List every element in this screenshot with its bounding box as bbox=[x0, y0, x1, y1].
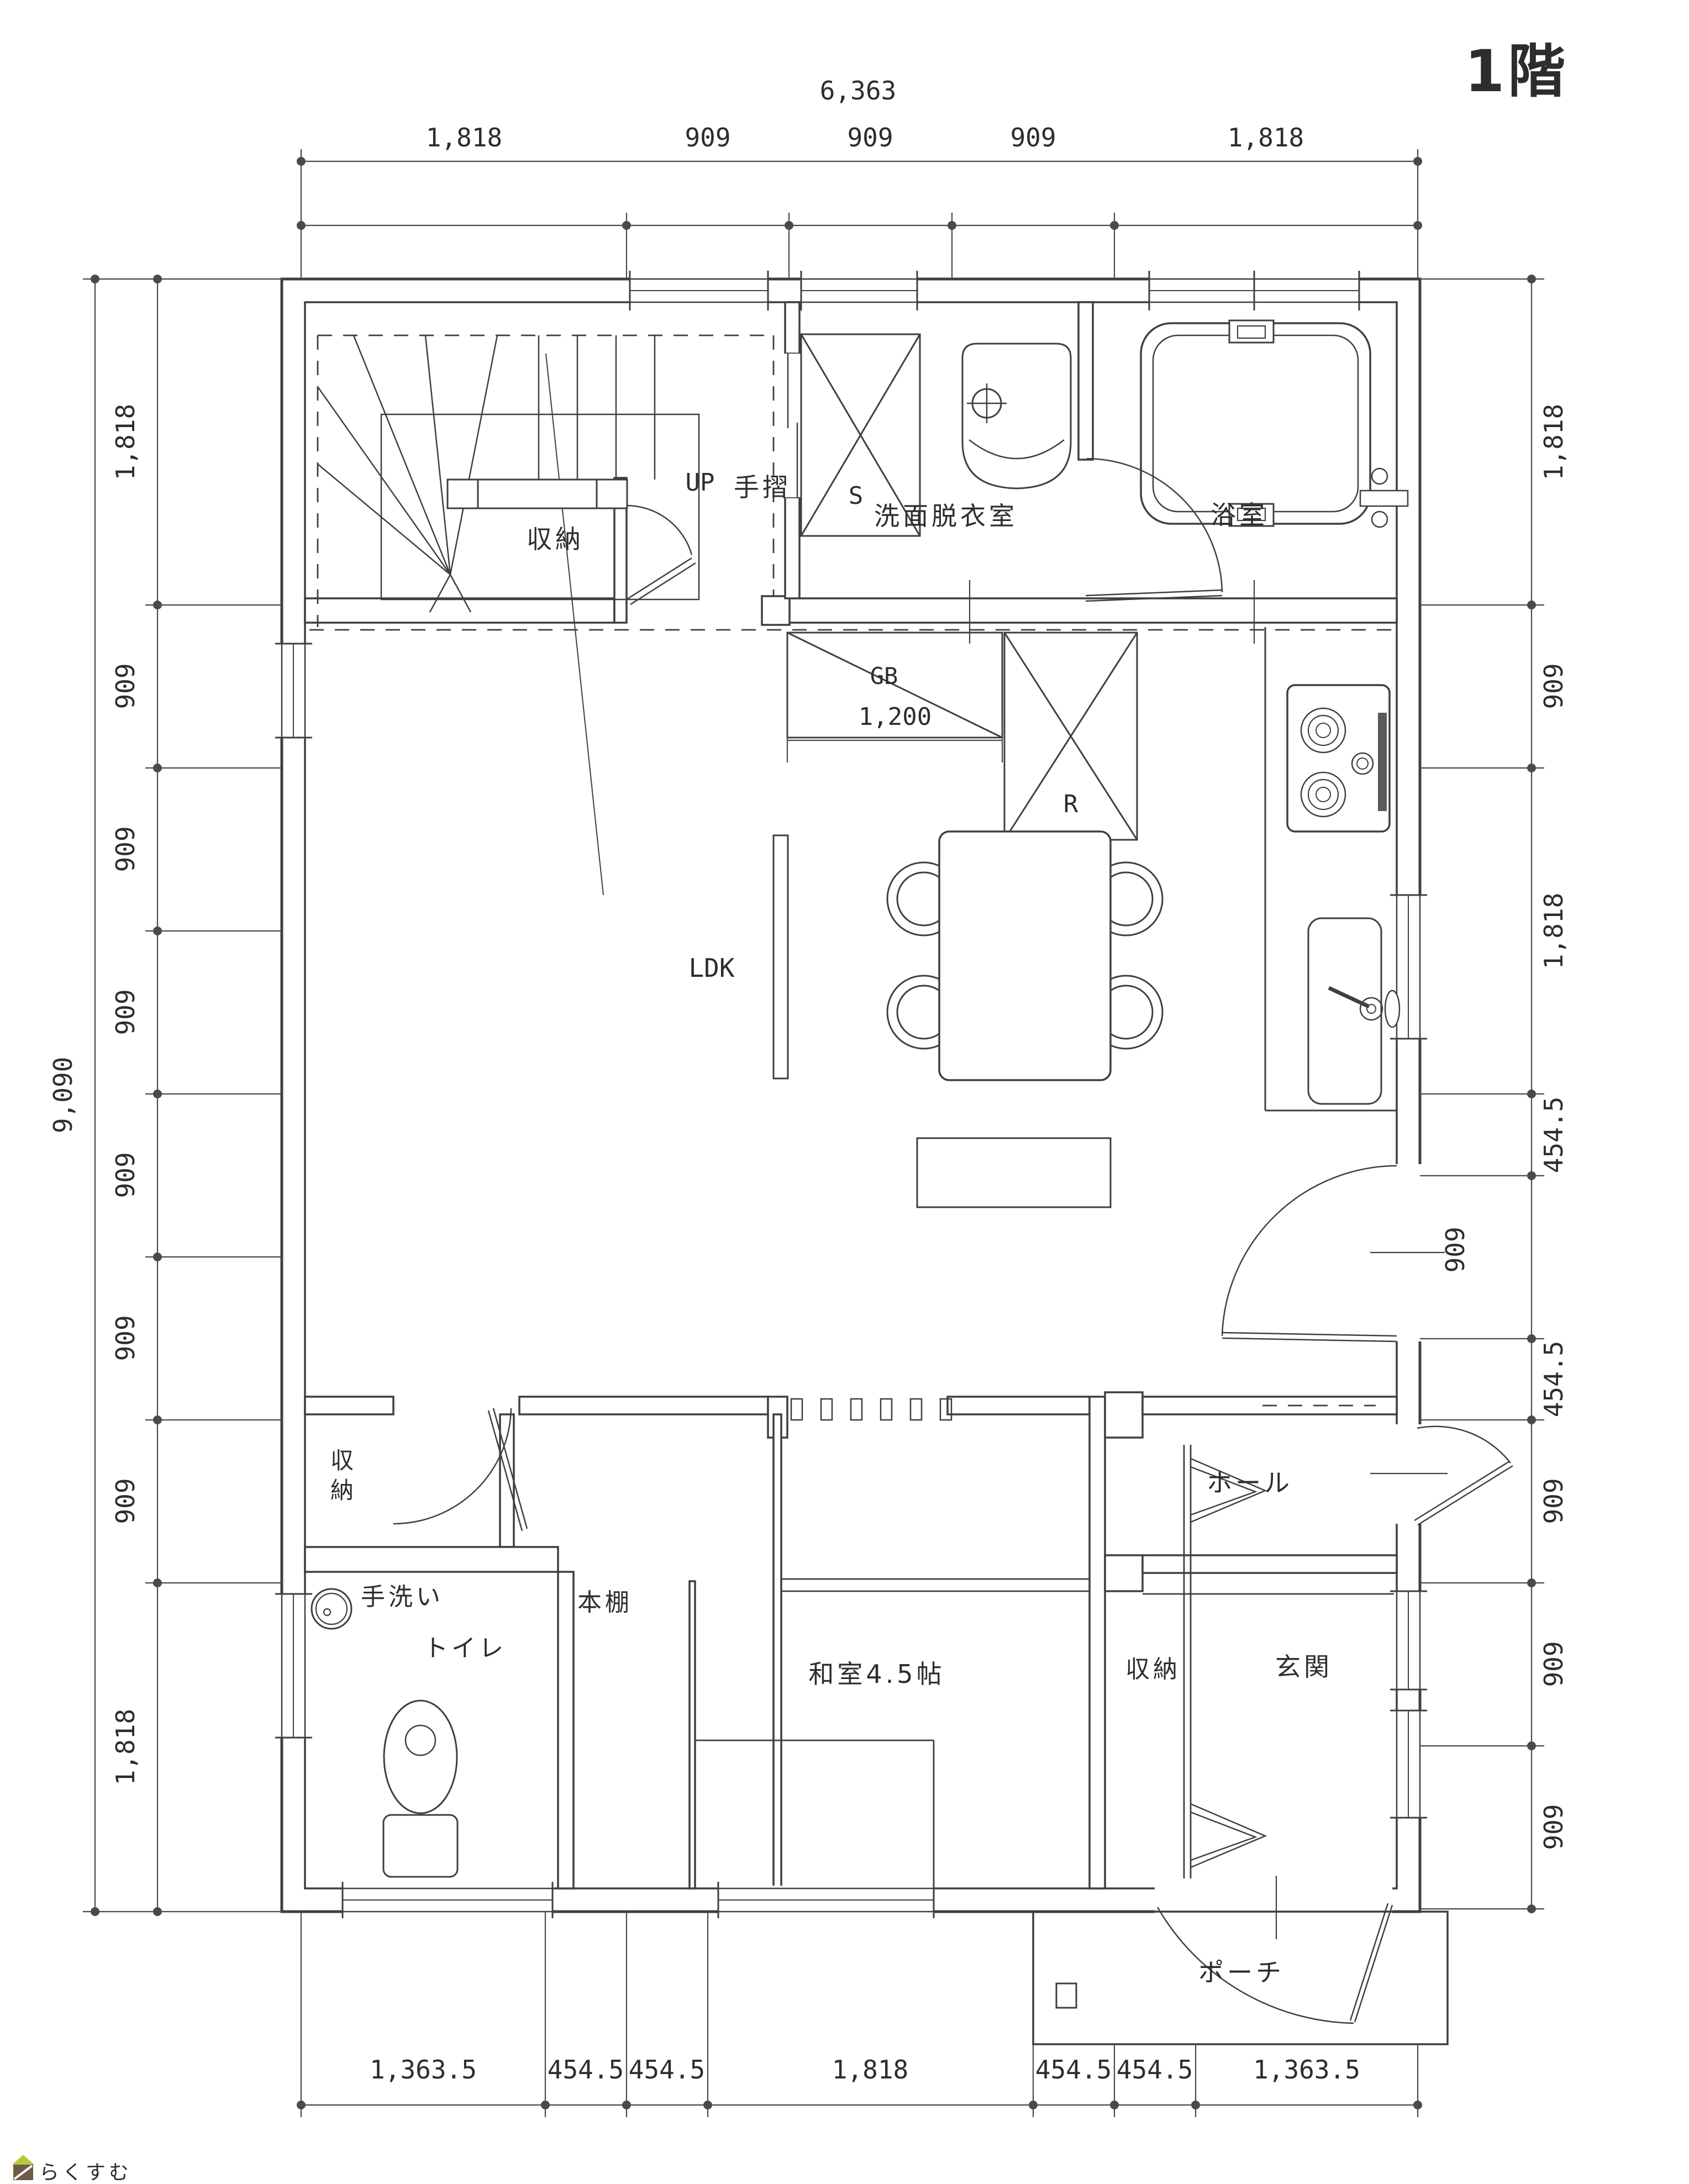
dim-bottom-5: 454.5 bbox=[1117, 2055, 1193, 2085]
room-label-entrance: 玄関 bbox=[1275, 1652, 1333, 1682]
dim-right-6: 909 bbox=[1539, 1478, 1569, 1524]
window-bottom-washitsu bbox=[718, 1882, 934, 1918]
dim-bottom-2: 454.5 bbox=[629, 2055, 705, 2085]
dim-right-2: 1,818 bbox=[1539, 893, 1569, 969]
gas-stove bbox=[1287, 685, 1390, 832]
logo-roof-icon bbox=[12, 2155, 34, 2165]
dim-top-3: 909 bbox=[1010, 123, 1056, 152]
floor-plan-page: 1階 6,363 1,818 909 909 909 1,818 9,090 1… bbox=[0, 0, 1689, 2184]
label-r: R bbox=[1064, 790, 1078, 818]
floor-plan-drawing: 1階 6,363 1,818 909 909 909 1,818 9,090 1… bbox=[0, 0, 1689, 2184]
window-left-ldk bbox=[275, 644, 312, 738]
room-label-japanese-room: 和室4.5帖 bbox=[808, 1659, 945, 1689]
room-label-hall: ホール bbox=[1207, 1468, 1293, 1498]
dim-left-1: 909 bbox=[111, 663, 140, 709]
dim-top-0: 1,818 bbox=[426, 123, 502, 152]
window-bottom-toilet bbox=[343, 1882, 553, 1918]
room-label-bookshelf: 本棚 bbox=[577, 1588, 633, 1617]
dim-bottom-1: 454.5 bbox=[548, 2055, 624, 2085]
window-left-toilet bbox=[275, 1594, 312, 1738]
dim-right-7: 909 bbox=[1539, 1641, 1569, 1687]
room-label-up: UP bbox=[686, 469, 715, 497]
room-label-entry-storage: 収納 bbox=[1125, 1655, 1181, 1683]
room-label-storage-char1: 収 bbox=[330, 1447, 357, 1474]
logo-text: らくすむ bbox=[39, 2161, 132, 2184]
label-s: S bbox=[849, 482, 864, 510]
washitsu-track-squares bbox=[791, 1399, 951, 1420]
dim-top-4: 1,818 bbox=[1228, 123, 1304, 152]
low-board bbox=[917, 1138, 1111, 1207]
dim-top-2: 909 bbox=[847, 123, 893, 152]
room-label-porch: ポーチ bbox=[1198, 1957, 1285, 1987]
window-right-entrance-2 bbox=[1390, 1711, 1427, 1818]
window-top-bath bbox=[1149, 271, 1359, 311]
dim-left-3: 909 bbox=[111, 989, 140, 1035]
dim-left-0: 1,818 bbox=[111, 404, 140, 480]
window-top-stair bbox=[630, 271, 768, 311]
room-label-handrail: 手摺 bbox=[734, 472, 791, 502]
page-title: 1階 bbox=[1465, 38, 1569, 105]
dim-left-overall: 9,090 bbox=[48, 1057, 78, 1133]
room-label-bath: 浴室 bbox=[1211, 500, 1268, 530]
dining-table bbox=[939, 832, 1111, 1080]
kitchen-sink-counter bbox=[1265, 627, 1399, 1111]
hand-wash-basin bbox=[312, 1589, 351, 1629]
window-top-washroom bbox=[801, 271, 917, 311]
dim-bottom-0: 1,363.5 bbox=[370, 2055, 477, 2085]
dim-bottom-3: 1,818 bbox=[832, 2055, 908, 2085]
dim-left-5: 909 bbox=[111, 1315, 140, 1361]
room-label-ldk: LDK bbox=[688, 953, 734, 983]
dim-bottom-4: 454.5 bbox=[1035, 2055, 1112, 2085]
logo: らくすむ bbox=[12, 2155, 132, 2184]
dim-left-4: 909 bbox=[111, 1152, 140, 1198]
room-label-hand-wash: 手洗い bbox=[361, 1583, 444, 1611]
dim-left-7: 1,818 bbox=[111, 1709, 140, 1785]
room-label-washroom: 洗面脱衣室 bbox=[874, 501, 1018, 531]
handrail-bar bbox=[448, 480, 627, 508]
label-gb: GB bbox=[870, 662, 898, 690]
room-label-stair-storage: 収納 bbox=[527, 524, 584, 554]
stair-closet-doors bbox=[627, 506, 696, 604]
dim-top-1: 909 bbox=[685, 123, 730, 152]
dim-counter: 1,200 bbox=[859, 703, 932, 731]
partition-screen bbox=[774, 835, 788, 1078]
dim-left-6: 909 bbox=[111, 1478, 140, 1524]
dim-right-5: 454.5 bbox=[1539, 1341, 1569, 1417]
dim-right-0: 1,818 bbox=[1539, 404, 1569, 480]
dining-set bbox=[887, 832, 1162, 1080]
dimension-ticks bbox=[91, 157, 1536, 2109]
toilet-fixture bbox=[383, 1701, 457, 1877]
hall-door bbox=[1370, 1427, 1513, 1525]
room-label-toilet: トイレ bbox=[424, 1634, 507, 1662]
dim-bottom-6: 1,363.5 bbox=[1253, 2055, 1360, 2085]
dim-right-8: 909 bbox=[1539, 1804, 1569, 1850]
washroom-basin bbox=[962, 344, 1071, 488]
dim-right-3: 454.5 bbox=[1539, 1097, 1569, 1173]
bath-door bbox=[1086, 459, 1222, 601]
bathtub bbox=[1141, 320, 1408, 527]
room-label-storage-char2: 納 bbox=[330, 1477, 357, 1504]
dim-top-overall: 6,363 bbox=[820, 76, 896, 106]
labels: 1階 6,363 1,818 909 909 909 1,818 9,090 1… bbox=[48, 38, 1569, 2085]
dim-left-2: 909 bbox=[111, 826, 140, 872]
dim-right-4: 909 bbox=[1440, 1227, 1470, 1272]
entry-closet-bifold-doors bbox=[1191, 1459, 1265, 1867]
window-right-entrance-1 bbox=[1390, 1591, 1427, 1690]
dimension-lines bbox=[83, 149, 1544, 2117]
dim-right-1: 909 bbox=[1539, 663, 1569, 709]
